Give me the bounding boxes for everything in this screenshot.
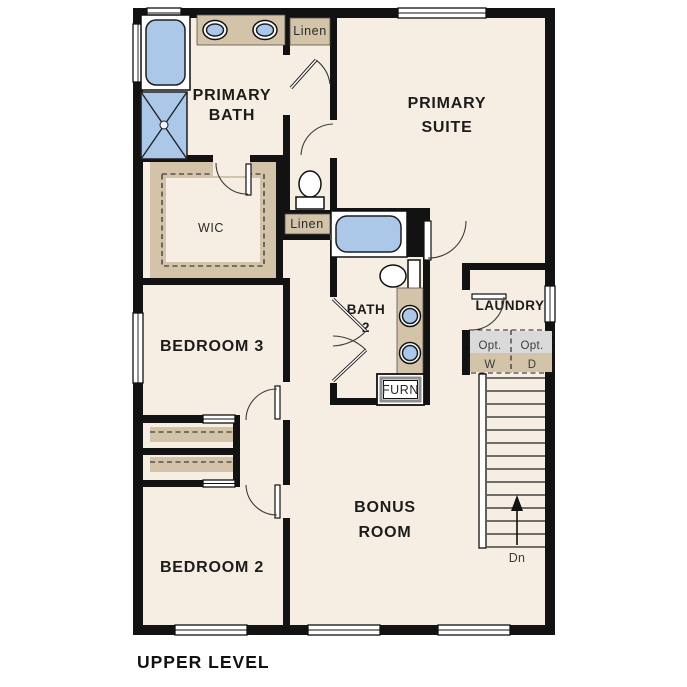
page-title: UPPER LEVEL (137, 652, 270, 672)
stair-railing (479, 374, 486, 548)
wic-doorway-floor (213, 162, 250, 176)
linen-top-label: Linen (293, 24, 327, 38)
wic-label: WIC (198, 221, 224, 235)
linen-hall-label: Linen (290, 217, 324, 231)
double-vanity-icon (197, 15, 285, 45)
washer-label-line1: Opt. (479, 340, 502, 352)
bonus-room-label-line2: ROOM (359, 524, 412, 541)
bedroom3-label: BEDROOM 3 (160, 338, 264, 355)
bedroom2-label: BEDROOM 2 (160, 559, 264, 576)
walk-in-closet: WIC (150, 162, 276, 278)
window-bottom-bonus-right (438, 625, 510, 635)
wic-door-leaf (246, 164, 251, 195)
primary-suite-label-line2: SUITE (421, 119, 472, 136)
primary-bath-label-line2: BATH (209, 107, 255, 124)
toilet-icon (296, 171, 324, 209)
stairs-down-label: Dn (509, 551, 526, 565)
closet-opening-bottom (203, 480, 235, 487)
window-bottom-bonus-left (308, 625, 380, 635)
shower-icon (141, 92, 187, 159)
floor-plan-page: PRIMARY BATH Linen Linen PRIMARY SUITE (0, 0, 687, 687)
laundry-label: LAUNDRY (476, 298, 545, 313)
furnace-label: FURN (382, 383, 419, 397)
laundry: LAUNDRY Opt. W Opt. D (469, 294, 553, 373)
primary-suite-label-line1: PRIMARY (408, 95, 487, 112)
suite-entry-door-leaf (424, 221, 431, 260)
primary-bath-label-line1: PRIMARY (193, 87, 272, 104)
washer-label-line2: W (484, 359, 495, 371)
furnace-closet: FURN (377, 374, 424, 405)
dryer-label-line1: Opt. (521, 340, 544, 352)
window-bottom-bedroom2 (175, 625, 247, 635)
bonus-room-label-line1: BONUS (354, 499, 416, 516)
bedroom2-door-leaf (275, 485, 280, 518)
floor-area (138, 13, 550, 630)
bath2-label-line1: BATH (347, 302, 386, 317)
window-top-suite (398, 8, 486, 18)
dryer-label-line2: D (528, 359, 537, 371)
bathtub-icon (141, 15, 190, 90)
floor-plan-drawing: PRIMARY BATH Linen Linen PRIMARY SUITE (0, 0, 687, 687)
washer-dryer-optional: Opt. W Opt. D (469, 330, 553, 373)
bath2-vanity-icon (397, 288, 423, 385)
closet-opening-top (203, 415, 235, 423)
bedroom3-door-leaf (275, 386, 280, 419)
window-left-bedroom3 (133, 313, 143, 383)
laundry-door-leaf (472, 294, 506, 299)
linen-closet-hall: Linen (285, 214, 330, 234)
window-right-laundry (545, 286, 555, 322)
bath2-tub-icon (331, 211, 407, 257)
